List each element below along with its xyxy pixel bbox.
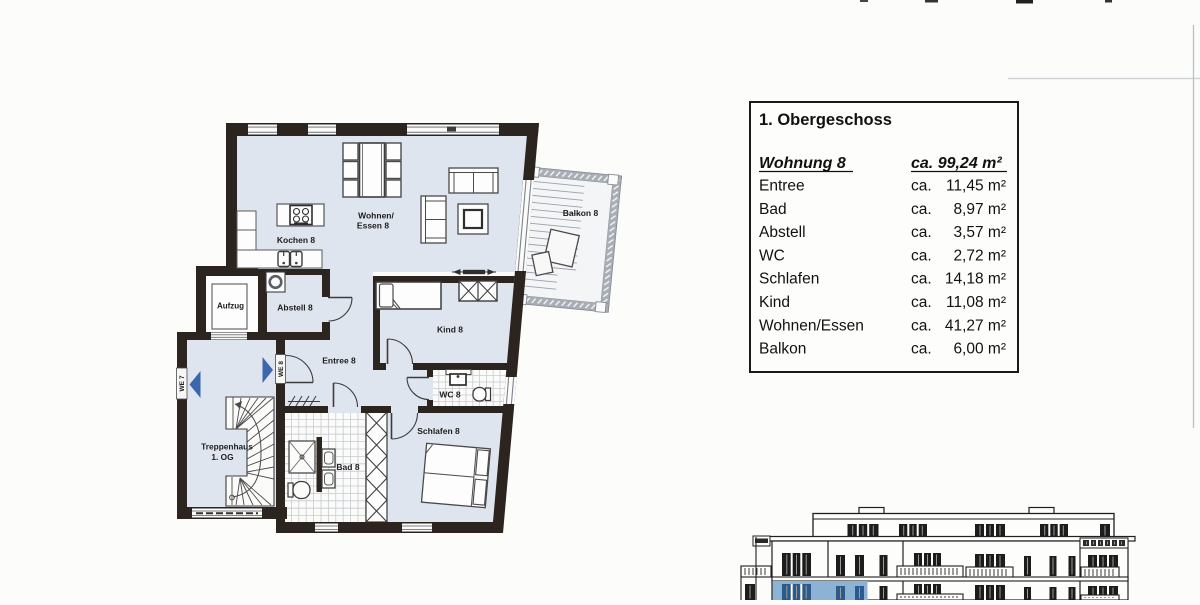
svg-text:Essen 8: Essen 8 [357, 221, 389, 231]
svg-text:WE 7: WE 7 [179, 375, 186, 391]
svg-text:Kind: Kind [759, 294, 790, 311]
svg-text:WC: WC [759, 247, 785, 264]
svg-text:Schlafen: Schlafen [759, 271, 819, 288]
svg-text:ca. 99,24 m²: ca. 99,24 m² [911, 155, 1002, 172]
svg-text:1. Obergeschoss: 1. Obergeschoss [759, 111, 892, 129]
svg-text:Entree: Entree [759, 178, 805, 195]
svg-text:ca.: ca. [911, 224, 932, 241]
svg-text:Kind 8: Kind 8 [437, 325, 463, 335]
svg-text:3,57 m²: 3,57 m² [953, 224, 1006, 241]
svg-text:8,97 m²: 8,97 m² [953, 201, 1006, 218]
svg-text:11,08 m²: 11,08 m² [946, 294, 1006, 311]
svg-text:14,18 m²: 14,18 m² [945, 271, 1006, 288]
svg-text:Wohnen/: Wohnen/ [358, 211, 394, 221]
svg-text:WC 8: WC 8 [439, 390, 461, 400]
svg-text:Balkon 8: Balkon 8 [563, 208, 599, 218]
svg-text:Abstell: Abstell [759, 224, 806, 241]
svg-text:41,27 m²: 41,27 m² [945, 317, 1006, 334]
svg-text:ca.: ca. [911, 341, 932, 358]
svg-text:Kochen 8: Kochen 8 [277, 235, 316, 245]
svg-text:Abstell 8: Abstell 8 [277, 303, 313, 313]
svg-text:Entree 8: Entree 8 [322, 356, 356, 366]
svg-text:ca.: ca. [911, 201, 932, 218]
svg-text:ca.: ca. [911, 271, 932, 288]
svg-text:ca.: ca. [911, 247, 932, 264]
svg-text:Treppenhaus: Treppenhaus [201, 442, 253, 452]
svg-text:ca.: ca. [911, 317, 932, 334]
svg-text:6,00 m²: 6,00 m² [953, 341, 1006, 358]
svg-text:Aufzug: Aufzug [217, 302, 244, 311]
svg-text:ca.: ca. [911, 178, 932, 195]
svg-text:Balkon: Balkon [759, 341, 806, 358]
svg-text:Bad: Bad [759, 201, 787, 218]
svg-text:Schlafen 8: Schlafen 8 [417, 426, 460, 436]
svg-text:11,45 m²: 11,45 m² [946, 178, 1006, 195]
svg-text:ca.: ca. [911, 294, 932, 311]
svg-text:2,72 m²: 2,72 m² [953, 247, 1006, 264]
svg-text:Wohnen/Essen: Wohnen/Essen [759, 317, 864, 334]
svg-text:Bad 8: Bad 8 [336, 462, 359, 472]
svg-text:Wohnung 8: Wohnung 8 [759, 155, 846, 172]
svg-text:1. OG: 1. OG [211, 452, 233, 462]
svg-text:WE 8: WE 8 [278, 361, 285, 377]
